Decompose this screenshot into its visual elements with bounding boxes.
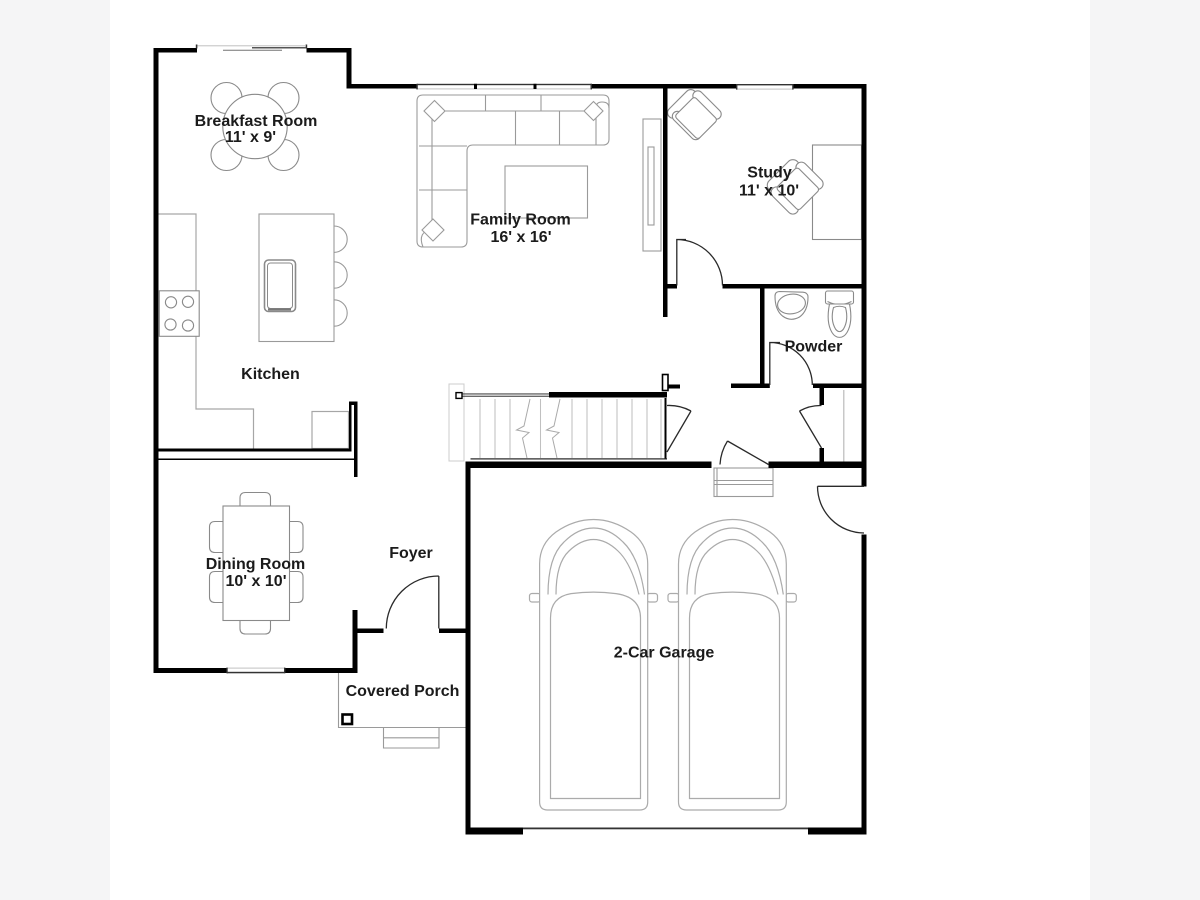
svg-text:16' x 16': 16' x 16' xyxy=(491,229,552,246)
svg-text:2-Car Garage: 2-Car Garage xyxy=(614,645,715,662)
svg-text:Foyer: Foyer xyxy=(389,545,433,562)
svg-text:Study: Study xyxy=(747,165,792,182)
svg-text:Breakfast Room: Breakfast Room xyxy=(195,113,318,130)
svg-text:11' x 9': 11' x 9' xyxy=(225,129,276,146)
svg-text:11' x 10': 11' x 10' xyxy=(739,183,799,200)
svg-text:Family Room: Family Room xyxy=(470,212,570,229)
svg-text:Powder: Powder xyxy=(785,339,843,356)
svg-text:Dining Room: Dining Room xyxy=(206,556,306,573)
svg-text:Kitchen: Kitchen xyxy=(241,366,300,383)
svg-text:10' x 10': 10' x 10' xyxy=(226,573,287,590)
svg-text:Covered Porch: Covered Porch xyxy=(346,683,460,700)
